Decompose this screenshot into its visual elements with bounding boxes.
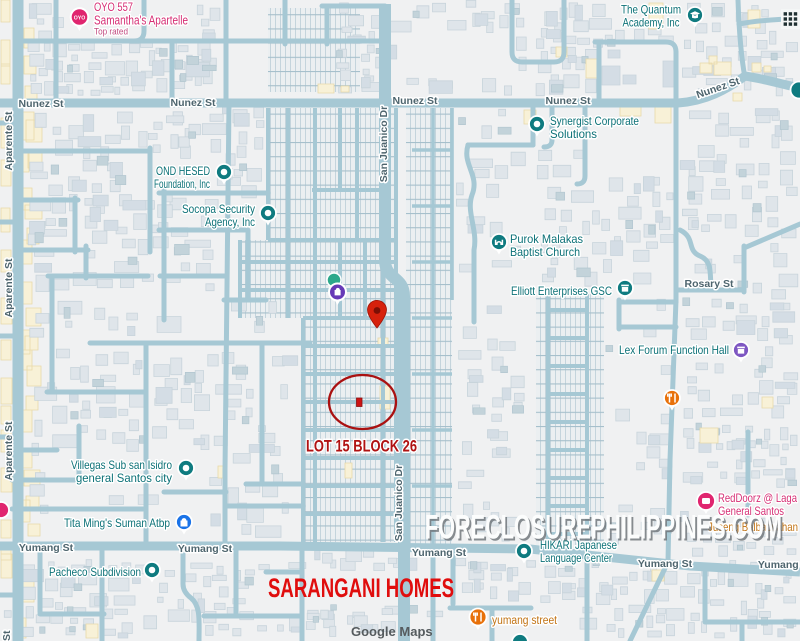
svg-text:Google Maps: Google Maps — [351, 624, 433, 639]
svg-text:San Juanico Dr: San Juanico Dr — [393, 465, 405, 541]
svg-text:yumang street: yumang street — [492, 615, 558, 627]
svg-text:Villegas Sub san Isidro: Villegas Sub san Isidro — [71, 458, 172, 472]
svg-text:Aparente St: Aparente St — [3, 258, 15, 317]
svg-text:Rosary St: Rosary St — [684, 278, 734, 290]
svg-text:Aparente St: Aparente St — [1, 630, 13, 641]
svg-text:Synergist Corporate: Synergist Corporate — [550, 114, 639, 128]
svg-text:Nunez St: Nunez St — [171, 97, 216, 109]
svg-text:Elliott Enterprises GSC: Elliott Enterprises GSC — [511, 284, 612, 298]
svg-text:Nunez St: Nunez St — [19, 98, 64, 110]
svg-text:Yumang St: Yumang St — [19, 542, 74, 554]
svg-text:Aparente St: Aparente St — [3, 111, 15, 170]
svg-text:Language Center: Language Center — [540, 551, 612, 565]
svg-text:Tita Ming's Suman Atbp: Tita Ming's Suman Atbp — [64, 516, 170, 530]
svg-text:general Santos city: general Santos city — [76, 471, 172, 485]
svg-text:Samantha's Apartelle: Samantha's Apartelle — [94, 13, 188, 28]
svg-text:Nunez St: Nunez St — [393, 95, 438, 107]
svg-text:Solutions: Solutions — [550, 127, 597, 141]
svg-text:The Quantum: The Quantum — [621, 3, 681, 17]
svg-text:Agency, Inc: Agency, Inc — [205, 215, 255, 229]
svg-text:San Juanico Dr: San Juanico Dr — [378, 106, 390, 182]
svg-text:Baptist Church: Baptist Church — [510, 245, 580, 259]
svg-text:SARANGANI HOMES: SARANGANI HOMES — [268, 573, 454, 603]
svg-text:OYO: OYO — [74, 15, 86, 21]
svg-text:Pacheco Subdivision: Pacheco Subdivision — [49, 565, 141, 579]
svg-text:Yumang St: Yumang St — [412, 547, 467, 559]
svg-text:RedDoorz @ Laga: RedDoorz @ Laga — [718, 491, 797, 505]
svg-text:LOT 15 BLOCK 26: LOT 15 BLOCK 26 — [306, 437, 417, 456]
svg-text:Nunez St: Nunez St — [546, 95, 591, 107]
svg-text:OND HESED: OND HESED — [156, 164, 210, 178]
svg-text:Yumang St: Yumang St — [638, 558, 693, 570]
svg-text:Top rated: Top rated — [94, 26, 128, 37]
svg-text:Lex Forum Function Hall: Lex Forum Function Hall — [619, 343, 729, 357]
svg-text:Foundation, Inc: Foundation, Inc — [154, 177, 210, 191]
svg-text:Socopa Security: Socopa Security — [182, 202, 255, 216]
svg-text:FORECLOSUREPHILIPPINES.COM: FORECLOSUREPHILIPPINES.COM — [425, 509, 782, 547]
svg-text:Academy, Inc: Academy, Inc — [623, 16, 680, 30]
svg-text:Purok Malakas: Purok Malakas — [510, 232, 583, 246]
svg-text:Yumang St: Yumang St — [178, 543, 233, 555]
svg-text:Yumang St: Yumang St — [758, 559, 800, 571]
svg-text:Aparente St: Aparente St — [3, 421, 15, 480]
